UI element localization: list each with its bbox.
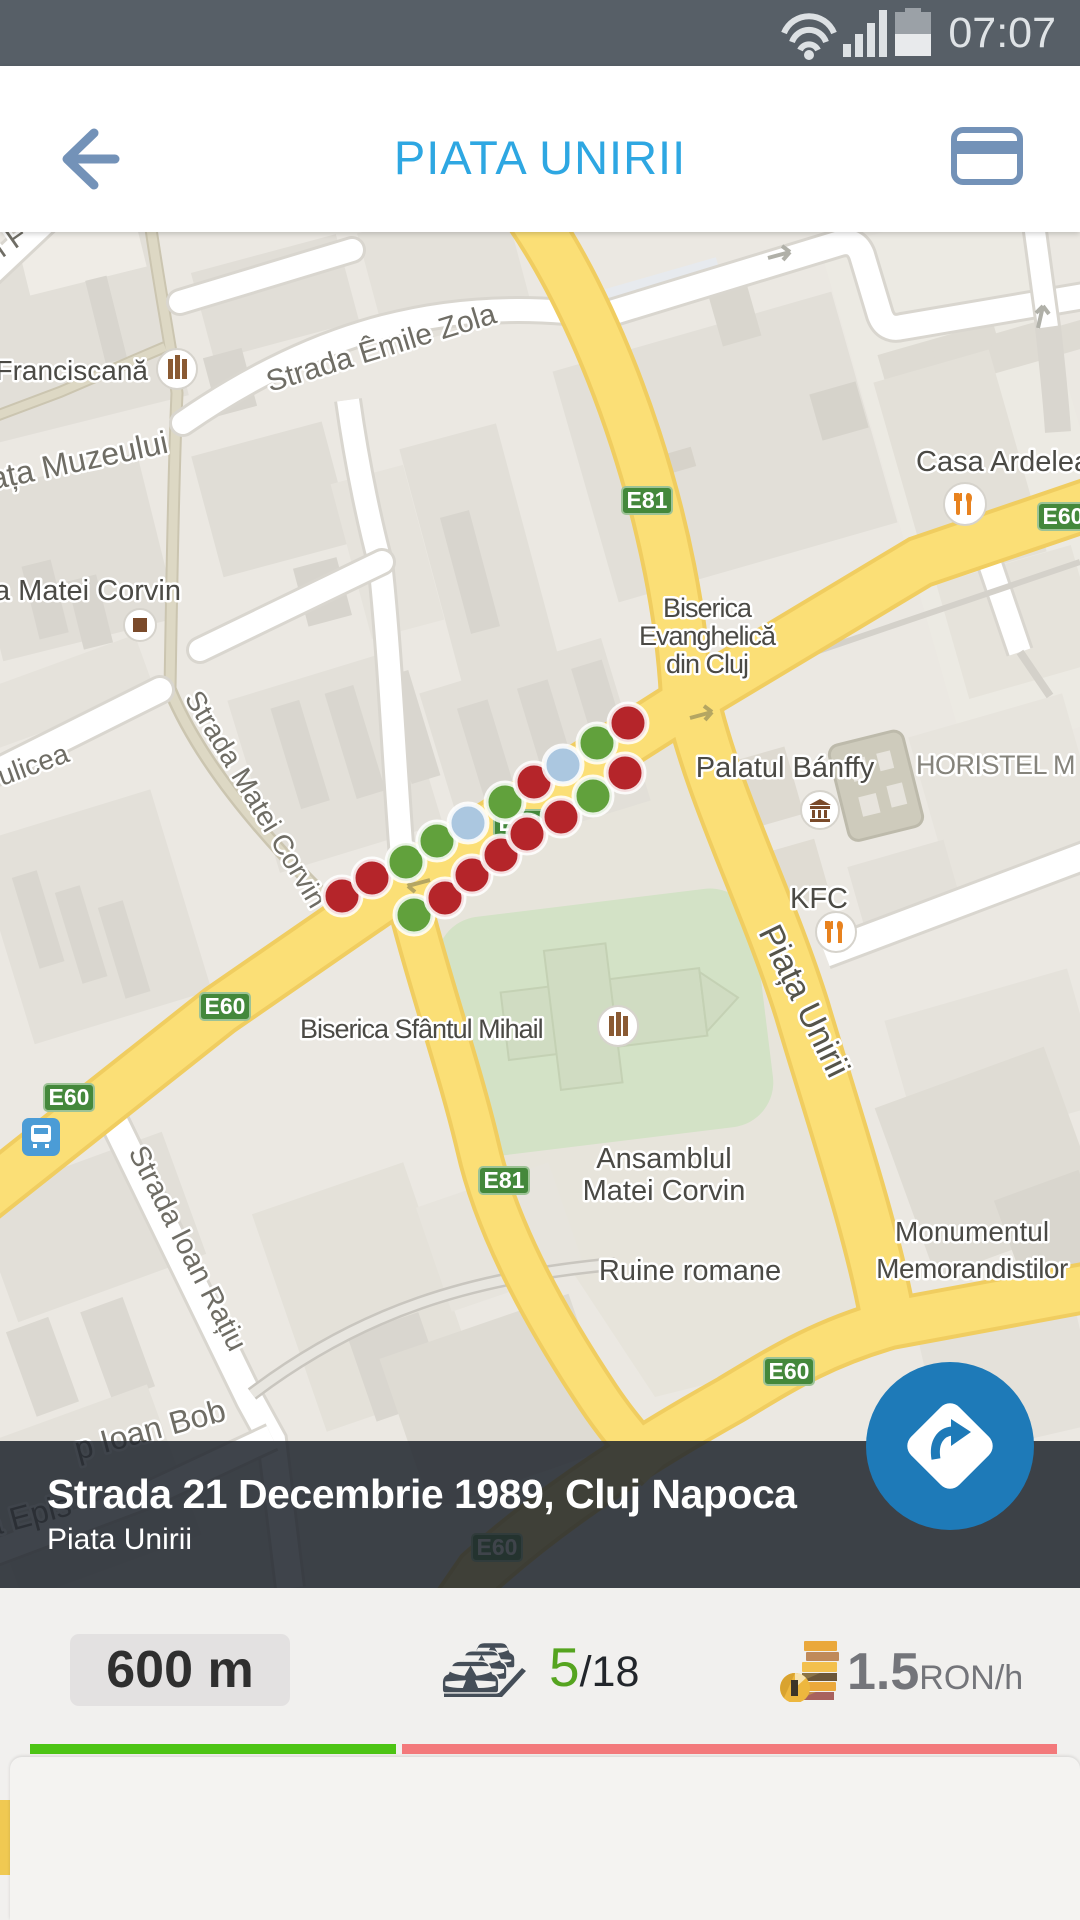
svg-text:E81: E81 [627,487,668,513]
svg-text:Franciscană: Franciscană [0,355,148,386]
svg-text:Evanghelică: Evanghelică [639,621,777,651]
svg-text:a Matei Corvin: a Matei Corvin [0,575,181,607]
svg-text:E81: E81 [484,1167,525,1193]
svg-text:Monumentul: Monumentul [895,1216,1049,1247]
svg-text:Biserica Sfântul Mihail: Biserica Sfântul Mihail [300,1014,543,1044]
svg-text:KFC: KFC [790,883,848,915]
svg-text:Ansamblul: Ansamblul [596,1143,731,1175]
svg-text:din Cluj: din Cluj [666,649,748,679]
svg-text:E60: E60 [205,993,246,1019]
svg-text:Casa Ardelea: Casa Ardelea [916,446,1080,478]
svg-text:Palatul Bánffy: Palatul Bánffy [696,752,875,784]
svg-text:Biserica: Biserica [663,593,753,623]
svg-text:Memorandistilor: Memorandistilor [876,1253,1068,1284]
svg-text:E60: E60 [1043,503,1080,529]
svg-text:Matei Corvin: Matei Corvin [583,1175,746,1207]
svg-text:HORISTEL M: HORISTEL M [916,750,1075,780]
svg-text:E60: E60 [49,1084,90,1110]
svg-text:Ruine romane: Ruine romane [599,1255,781,1287]
svg-text:E60: E60 [769,1358,810,1384]
